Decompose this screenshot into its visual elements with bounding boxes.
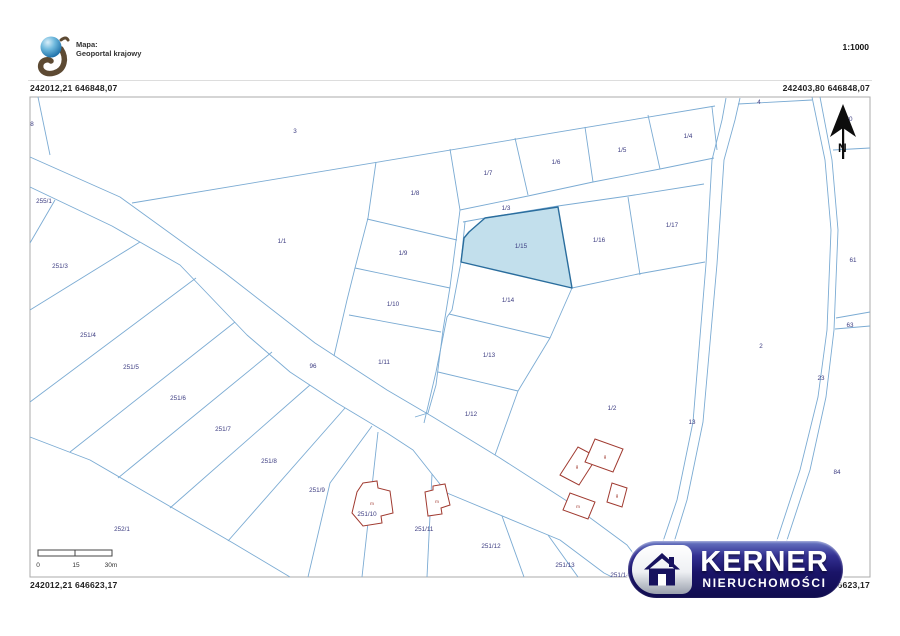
parcel-label-1-8: 1/8 bbox=[411, 190, 420, 197]
parcel-label-23: 23 bbox=[817, 375, 825, 382]
parcel-label-1-12: 1/12 bbox=[465, 411, 478, 418]
parcel-label-251-8: 251/8 bbox=[261, 458, 277, 465]
house-icon bbox=[643, 552, 681, 588]
parcel-label-252-1: 252/1 bbox=[114, 526, 130, 533]
kerner-brand-subtitle: NIERUCHOMOŚCI bbox=[692, 576, 837, 590]
parcel-label-84: 84 bbox=[833, 469, 841, 476]
parcel-label-251-9: 251/9 bbox=[309, 487, 325, 494]
scalebar-label-0: 0 bbox=[36, 562, 40, 569]
parcel-label-251-4: 251/4 bbox=[80, 332, 96, 339]
parcel-label-1-16: 1/16 bbox=[593, 237, 606, 244]
parcel-label-13: 13 bbox=[688, 419, 696, 426]
parcel-label-3: 3 bbox=[293, 128, 297, 135]
parcel-label-1-13: 1/13 bbox=[483, 352, 496, 359]
parcel-label-251-7: 251/7 bbox=[215, 426, 231, 433]
parcel-label-8: 8 bbox=[30, 121, 34, 128]
parcel-label-1-17: 1/17 bbox=[666, 222, 679, 229]
parcel-label-61: 61 bbox=[849, 257, 857, 264]
parcel-label-251-11: 251/11 bbox=[415, 526, 434, 533]
kerner-watermark: KERNER NIERUCHOMOŚCI bbox=[628, 541, 843, 598]
parcel-label-1-15: 1/15 bbox=[515, 243, 528, 250]
parcel-label-251-6: 251/6 bbox=[170, 395, 186, 402]
building-label-3: g bbox=[616, 493, 619, 498]
parcel-label-1-6: 1/6 bbox=[552, 159, 561, 166]
north-letter: N bbox=[838, 141, 847, 155]
kerner-house-panel bbox=[632, 545, 692, 594]
parcel-label-255-1: 255/1 bbox=[36, 198, 52, 205]
parcel-label-4: 4 bbox=[757, 99, 761, 106]
parcel-label-63: 63 bbox=[846, 322, 854, 329]
geoportal-map-export: Mapa: Geoportal krajowy 1:1000 242012,21… bbox=[0, 0, 900, 636]
parcel-label-251-12: 251/12 bbox=[481, 543, 501, 550]
parcel-label-1-4: 1/4 bbox=[684, 133, 693, 140]
parcel-label-96: 96 bbox=[309, 363, 317, 370]
parcel-label-1-2: 1/2 bbox=[608, 405, 617, 412]
kerner-text: KERNER NIERUCHOMOŚCI bbox=[692, 549, 843, 590]
parcel-label-1-10: 1/10 bbox=[387, 301, 400, 308]
parcel-label-1-7: 1/7 bbox=[484, 170, 493, 177]
parcel-label-1-11: 1/11 bbox=[378, 359, 390, 366]
parcel-label-1-3: 1/3 bbox=[502, 205, 511, 212]
parcel-label-1-9: 1/9 bbox=[399, 250, 408, 257]
parcel-label-251-14: 251/14 bbox=[610, 572, 630, 579]
parcel-label-251-13: 251/13 bbox=[555, 562, 575, 569]
parcel-label-2: 2 bbox=[759, 343, 763, 350]
building-label-5: m bbox=[435, 499, 439, 504]
parcel-label-251-10: 251/10 bbox=[357, 511, 377, 518]
building-label-4: m bbox=[370, 501, 374, 506]
scalebar-label-2: 30m bbox=[105, 562, 118, 569]
parcel-label-1-5: 1/5 bbox=[618, 147, 627, 154]
building-label-1: g bbox=[604, 454, 607, 459]
parcel-label-251-3: 251/3 bbox=[52, 263, 68, 270]
scalebar-label-1: 15 bbox=[72, 562, 80, 569]
building-label-0: g bbox=[576, 464, 579, 469]
building-label-2: m bbox=[576, 504, 580, 509]
kerner-brand-name: KERNER bbox=[692, 549, 837, 576]
parcel-label-1-1: 1/1 bbox=[278, 238, 287, 245]
parcel-label-1-14: 1/14 bbox=[502, 297, 515, 304]
parcel-label-251-5: 251/5 bbox=[123, 364, 139, 371]
